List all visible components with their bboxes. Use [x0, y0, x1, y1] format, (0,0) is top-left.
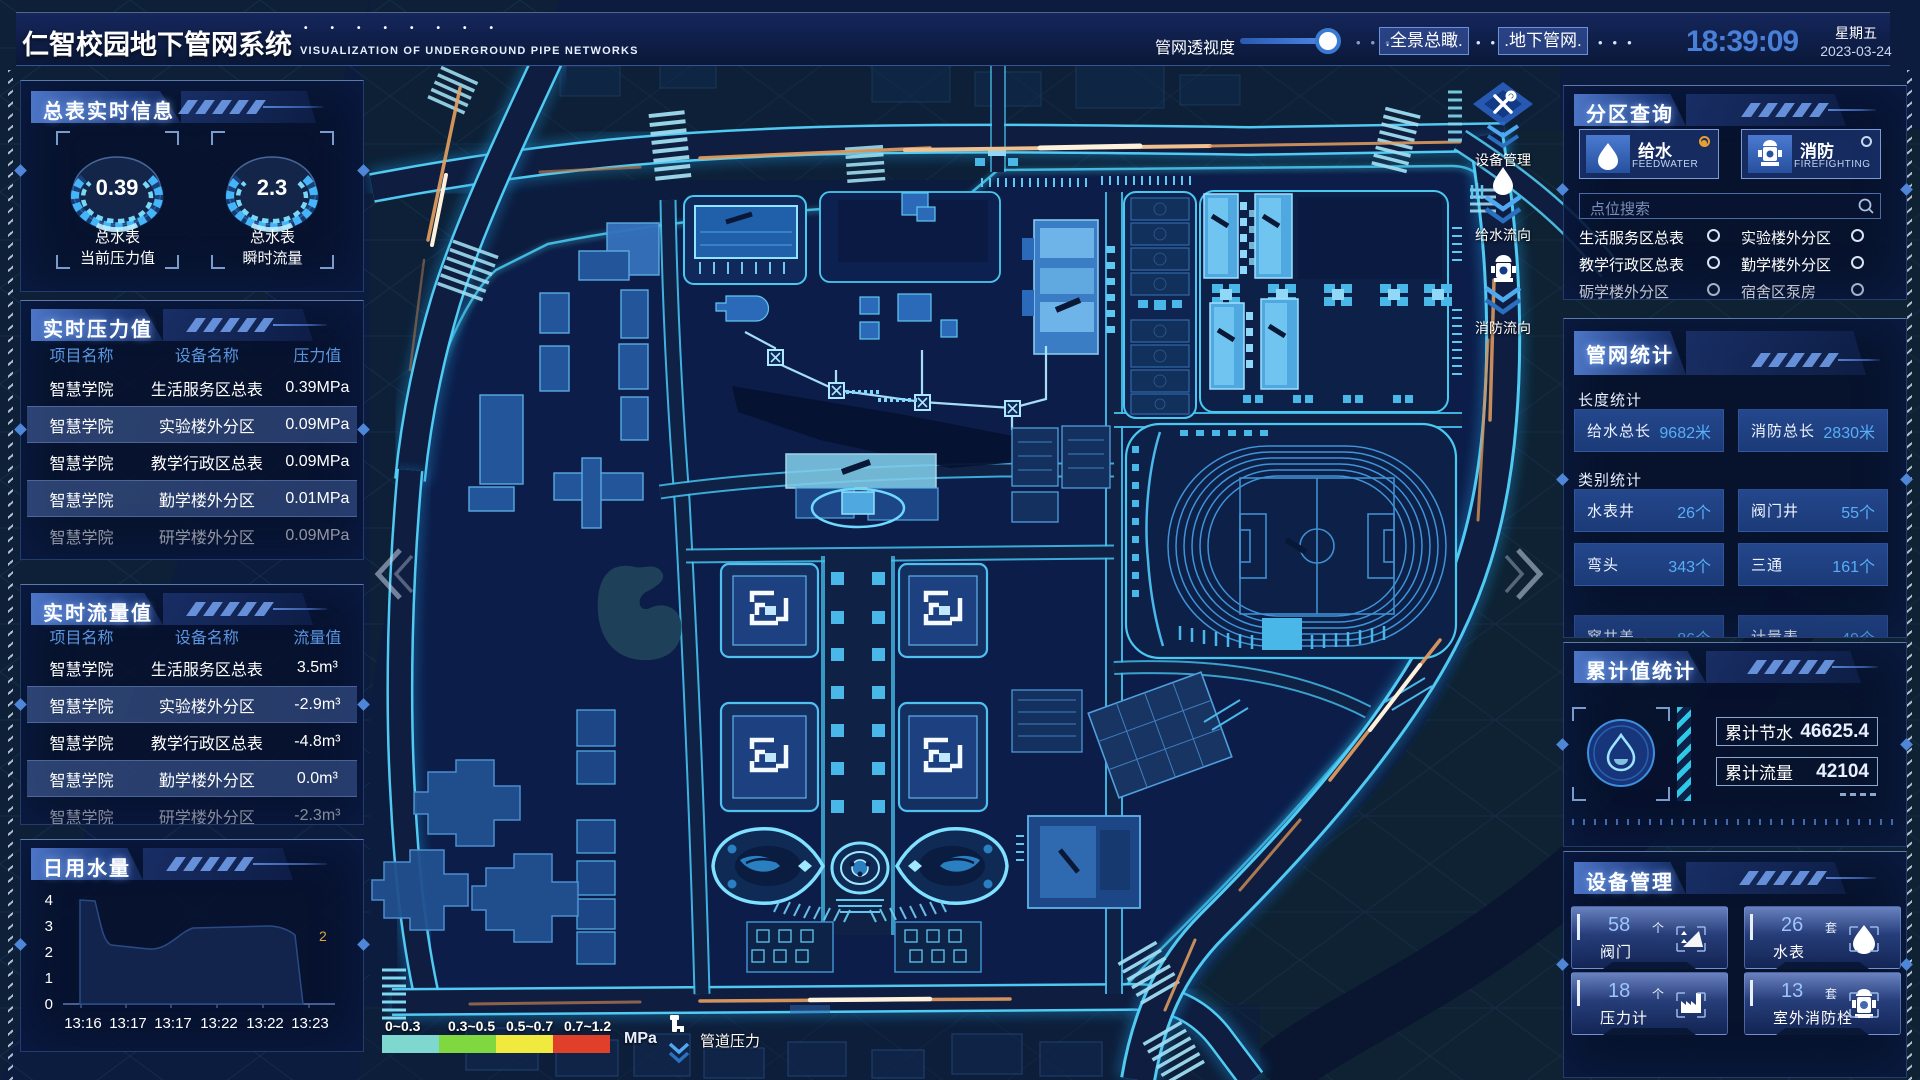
svg-text:2: 2 — [319, 928, 327, 944]
svg-text:2: 2 — [45, 944, 53, 961]
svg-text:3: 3 — [45, 918, 53, 935]
svg-text:13:16: 13:16 — [64, 1015, 102, 1032]
svg-text:13:17: 13:17 — [154, 1015, 192, 1032]
svg-text:13:22: 13:22 — [200, 1015, 238, 1032]
svg-text:2.3: 2.3 — [257, 175, 288, 200]
svg-text:13:22: 13:22 — [246, 1015, 284, 1032]
svg-text:0.39: 0.39 — [96, 175, 139, 200]
svg-text:13:23: 13:23 — [291, 1015, 329, 1032]
svg-text:1: 1 — [45, 970, 53, 987]
svg-text:4: 4 — [45, 892, 53, 909]
svg-text:13:17: 13:17 — [109, 1015, 147, 1032]
svg-text:0: 0 — [45, 996, 53, 1013]
